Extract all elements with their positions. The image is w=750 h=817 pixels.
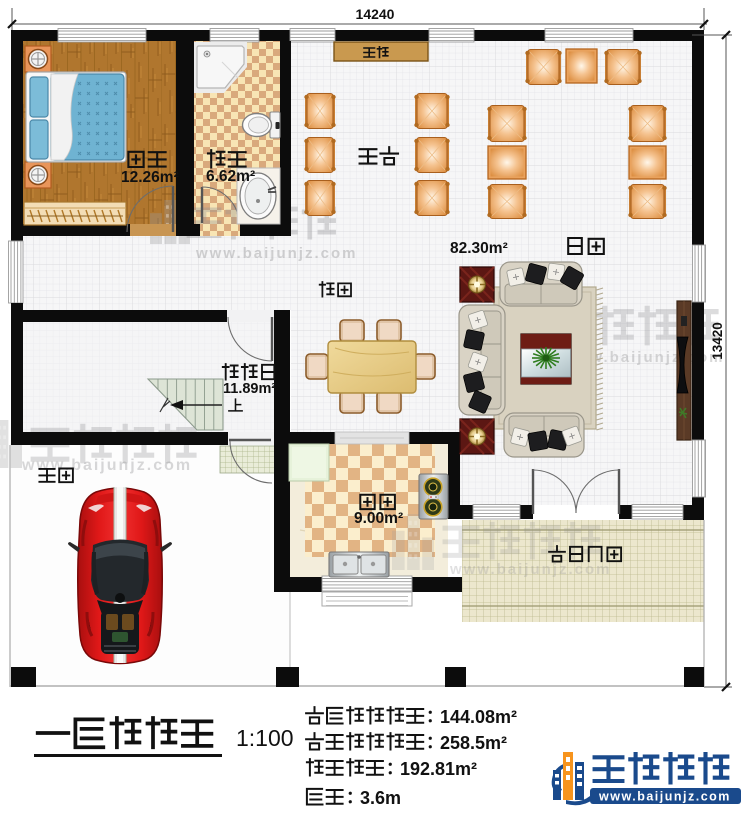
svg-text:12.26m²: 12.26m² bbox=[121, 169, 179, 186]
svg-text:144.08m²: 144.08m² bbox=[440, 707, 517, 727]
svg-text:1:100: 1:100 bbox=[236, 725, 294, 751]
svg-text:82.30m²: 82.30m² bbox=[450, 240, 508, 257]
svg-text:14240: 14240 bbox=[356, 6, 395, 22]
svg-text:3.6m: 3.6m bbox=[360, 788, 401, 808]
svg-text:6.62m²: 6.62m² bbox=[206, 168, 255, 185]
svg-text:www.baijunjz.com: www.baijunjz.com bbox=[195, 245, 357, 262]
svg-text:11.89m²: 11.89m² bbox=[223, 381, 276, 397]
svg-text:258.5m²: 258.5m² bbox=[440, 733, 507, 753]
svg-text:13420: 13420 bbox=[710, 322, 725, 360]
svg-text:9.00m²: 9.00m² bbox=[354, 510, 403, 527]
svg-text:www.baijunjz.com: www.baijunjz.com bbox=[598, 790, 731, 804]
svg-text:192.81m²: 192.81m² bbox=[400, 759, 477, 779]
svg-text:www.baijunjz.com: www.baijunjz.com bbox=[449, 561, 611, 578]
